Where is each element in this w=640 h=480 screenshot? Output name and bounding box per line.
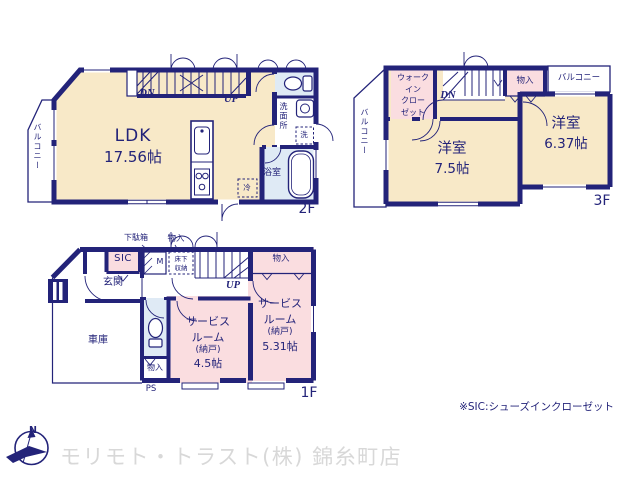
company-watermark: モリモト・トラスト(株) 錦糸町店 [60, 447, 402, 468]
closet-top-label: 物入 [167, 235, 184, 244]
wic-line1: ウォーク [391, 72, 435, 84]
service-a-name1: サービス [186, 316, 230, 327]
ldk-area: 17.56帖 [104, 150, 162, 165]
service-b-name1: サービス [258, 298, 302, 309]
ps-label: PS [146, 385, 157, 394]
floor-label-2f: 2F [299, 202, 316, 216]
balcony-top-label-3f: バルコニー [558, 74, 600, 83]
service-b-name2: ルーム [264, 314, 297, 325]
service-a-sub: (納戸) [195, 346, 220, 355]
room-sub-name: 洋室 [552, 117, 581, 132]
service-b-sub: (納戸) [267, 328, 292, 337]
balcony-left-label-3f: バルコニー [360, 108, 368, 156]
stairs-dn-label-3f: DN [440, 91, 455, 102]
bath-label: 浴室 [263, 169, 281, 178]
balcony-label-2f: バルコニー [33, 123, 41, 171]
stairs-dn-label-2f: DN [139, 89, 154, 100]
garage-label: 車庫 [88, 336, 108, 346]
shoe-cabinet-label: 下駄箱 [124, 234, 148, 242]
service-a-area: 4.5帖 [194, 358, 223, 369]
stairs-up-label-2f: UP [224, 95, 238, 106]
room-sub-area: 6.37帖 [544, 138, 588, 152]
sic-note: ※SIC:シューズインクローゼット [459, 402, 614, 413]
closet-bottom-label: 物入 [147, 364, 163, 372]
washer-label: 洗 [300, 131, 308, 139]
walk-in-closet-label: ウォーク イン クロー ゼット [391, 72, 435, 118]
wic-line4: ゼット [391, 107, 435, 119]
closet-label-3f: 物入 [516, 77, 533, 86]
ldk-label: LDK [115, 128, 152, 145]
entrance-label: 玄関 [103, 278, 123, 288]
compass-icon [6, 428, 48, 465]
room-main-area: 7.5帖 [435, 163, 470, 177]
washroom-label: 洗面所 [279, 102, 287, 131]
floor-label-3f: 3F [594, 194, 611, 208]
floorplan-image: バルコニー LDK 17.56帖 DN UP 洗面所 洗 浴室 冷 2F バルコ… [0, 0, 640, 480]
room-main-name: 洋室 [438, 142, 467, 157]
sic-label: SIC [114, 254, 132, 264]
service-a-name2: ルーム [192, 332, 225, 343]
meter-label: M [157, 258, 164, 266]
floor-2f-shapes [28, 54, 333, 221]
underfloor-line1: 床下 [169, 255, 193, 264]
closet-right-label: 物入 [272, 255, 289, 264]
stairs-up-label-1f: UP [226, 281, 240, 292]
service-b-area: 5.31帖 [262, 341, 298, 352]
wic-line3: クロー [391, 95, 435, 107]
fridge-label: 冷 [243, 184, 251, 192]
underfloor-storage-label: 床下 収納 [169, 255, 193, 272]
underfloor-line2: 収納 [169, 264, 193, 273]
wic-line2: イン [391, 84, 435, 96]
floor-label-1f: 1F [301, 386, 318, 400]
compass-north-label: N [29, 426, 37, 436]
